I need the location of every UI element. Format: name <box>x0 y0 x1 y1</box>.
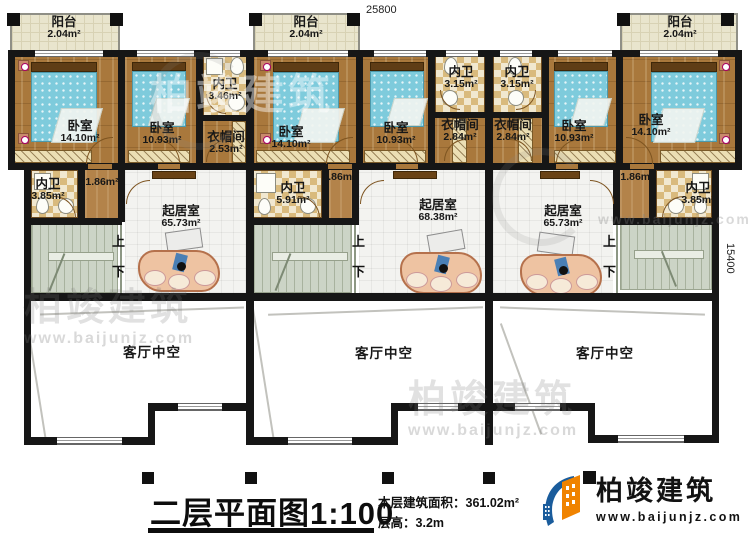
column-marker <box>382 472 394 484</box>
door-gap <box>396 164 418 169</box>
title-underline <box>148 528 374 533</box>
bed <box>130 60 188 128</box>
sofa-set-right <box>518 234 604 296</box>
floor-plan: 阳台2.04m² 阳台2.04m² 阳台2.04m² 卧室14.10m² 卧室1… <box>0 0 750 541</box>
room-label-bedroom-l2: 卧室10.93m² <box>142 122 181 146</box>
tv-cabinet <box>393 171 437 179</box>
room-label-balcony-middle: 阳台2.04m² <box>289 16 322 40</box>
column-marker <box>617 13 630 26</box>
shower <box>256 173 276 193</box>
stair-rail <box>48 252 114 261</box>
door-gap <box>88 164 112 169</box>
toilet <box>230 57 244 75</box>
column-marker <box>721 13 734 26</box>
room-label-closet-l: 衣帽间2.53m² <box>207 131 245 155</box>
stair-down-label: 下 <box>352 261 365 280</box>
column-marker <box>110 13 123 26</box>
room-label-balcony-left: 阳台2.04m² <box>47 16 80 40</box>
room-label-living-r: 起居室65.73m² <box>543 205 582 229</box>
floor-area-text: 本层建筑面积：361.02m² <box>378 492 519 511</box>
stair-up-label: 上 <box>603 231 616 250</box>
stair-down-label: 下 <box>603 261 616 280</box>
room-label-bedroom-m2: 卧室10.93m² <box>376 122 415 146</box>
void-edge-line <box>268 306 483 315</box>
door-gap <box>158 164 180 169</box>
room-label-hall-r: 1.86m² <box>620 172 653 183</box>
room-label-closet-m: 衣帽间2.84m² <box>441 119 479 143</box>
column-marker <box>483 472 495 484</box>
room-label-void-m: 客厅中空 <box>355 347 413 361</box>
void-edge-line <box>252 307 274 438</box>
tv-cabinet <box>540 171 580 179</box>
stair-railing <box>616 225 618 293</box>
stair-up-label: 上 <box>112 231 125 250</box>
door-gap <box>556 164 578 169</box>
sofa-set-left <box>138 230 224 292</box>
floor-height-text: 层高：3.2m <box>378 512 444 531</box>
tv-cabinet <box>152 171 196 179</box>
bed <box>552 60 610 128</box>
room-label-hall-m: 1.86m² <box>322 172 355 183</box>
company-logo: 柏竣建筑 www.baijunjz.com <box>540 466 745 536</box>
room-label-closet-r: 衣帽间2.84m² <box>494 119 532 143</box>
logo-square <box>583 471 596 484</box>
column-marker <box>245 472 257 484</box>
room-label-balcony-right: 阳台2.04m² <box>663 16 696 40</box>
column-marker <box>249 13 262 26</box>
room-label-hall-l: 1.86m² <box>85 177 118 188</box>
bed <box>368 60 426 128</box>
stair-rail <box>272 252 348 261</box>
column-marker <box>142 472 154 484</box>
void-edge-line <box>500 323 542 434</box>
wardrobe <box>660 150 736 163</box>
column-marker <box>347 13 360 26</box>
room-label-living-l: 起居室65.73m² <box>161 205 200 229</box>
room-label-void-l: 客厅中空 <box>123 346 181 360</box>
room-label-bath-r: 内卫3.85m² <box>681 182 714 206</box>
logo-website: www.baijunjz.com <box>596 510 742 524</box>
room-label-bedroom-r1: 卧室14.10m² <box>631 114 670 138</box>
wardrobe <box>14 150 92 163</box>
logo-company-name: 柏竣建筑 <box>596 478 716 505</box>
stair-up-label: 上 <box>352 231 365 250</box>
door-gap <box>630 164 654 169</box>
stair-rail <box>634 250 704 259</box>
room-label-bedroom-m1: 卧室14.10m² <box>271 126 310 150</box>
room-label-bedroom-r2: 卧室10.93m² <box>554 120 593 144</box>
page-title: 二层平面图1:100 <box>150 488 394 533</box>
dimension-right: 15400 <box>724 243 736 274</box>
room-label-void-r: 客厅中空 <box>576 347 634 361</box>
shower <box>206 58 223 75</box>
room-label-bath-l-top: 内卫3.46m² <box>208 78 241 102</box>
stair-down-label: 下 <box>112 261 125 280</box>
room-label-bedroom-l1: 卧室14.10m² <box>60 120 99 144</box>
void-edge-line <box>500 306 705 315</box>
room-label-living-m: 起居室68.38m² <box>418 199 457 223</box>
room-label-bath-m-top: 内卫3.15m² <box>444 66 477 90</box>
void-edge-line <box>40 306 244 315</box>
room-label-bath-r-top: 内卫3.15m² <box>500 66 533 90</box>
room-label-bath-m: 内卫5.91m² <box>276 182 309 206</box>
door-gap <box>328 164 352 169</box>
toilet <box>258 198 271 215</box>
dimension-top: 25800 <box>366 4 397 16</box>
sofa-set-middle <box>400 232 486 294</box>
room-label-bath-l: 内卫3.85m² <box>31 178 64 202</box>
column-marker <box>7 13 20 26</box>
